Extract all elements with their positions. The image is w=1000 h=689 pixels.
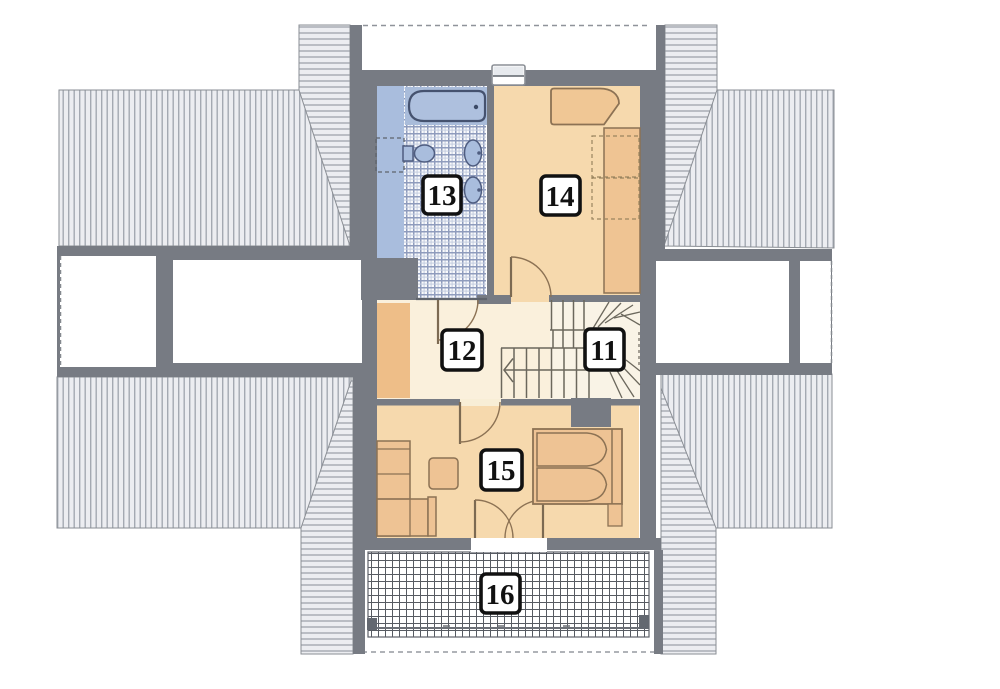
svg-text:11: 11	[590, 335, 617, 367]
svg-text:15: 15	[487, 455, 516, 487]
svg-text:16: 16	[486, 579, 515, 611]
svg-text:14: 14	[546, 181, 575, 213]
svg-text:12: 12	[448, 335, 477, 367]
svg-text:13: 13	[428, 180, 457, 212]
